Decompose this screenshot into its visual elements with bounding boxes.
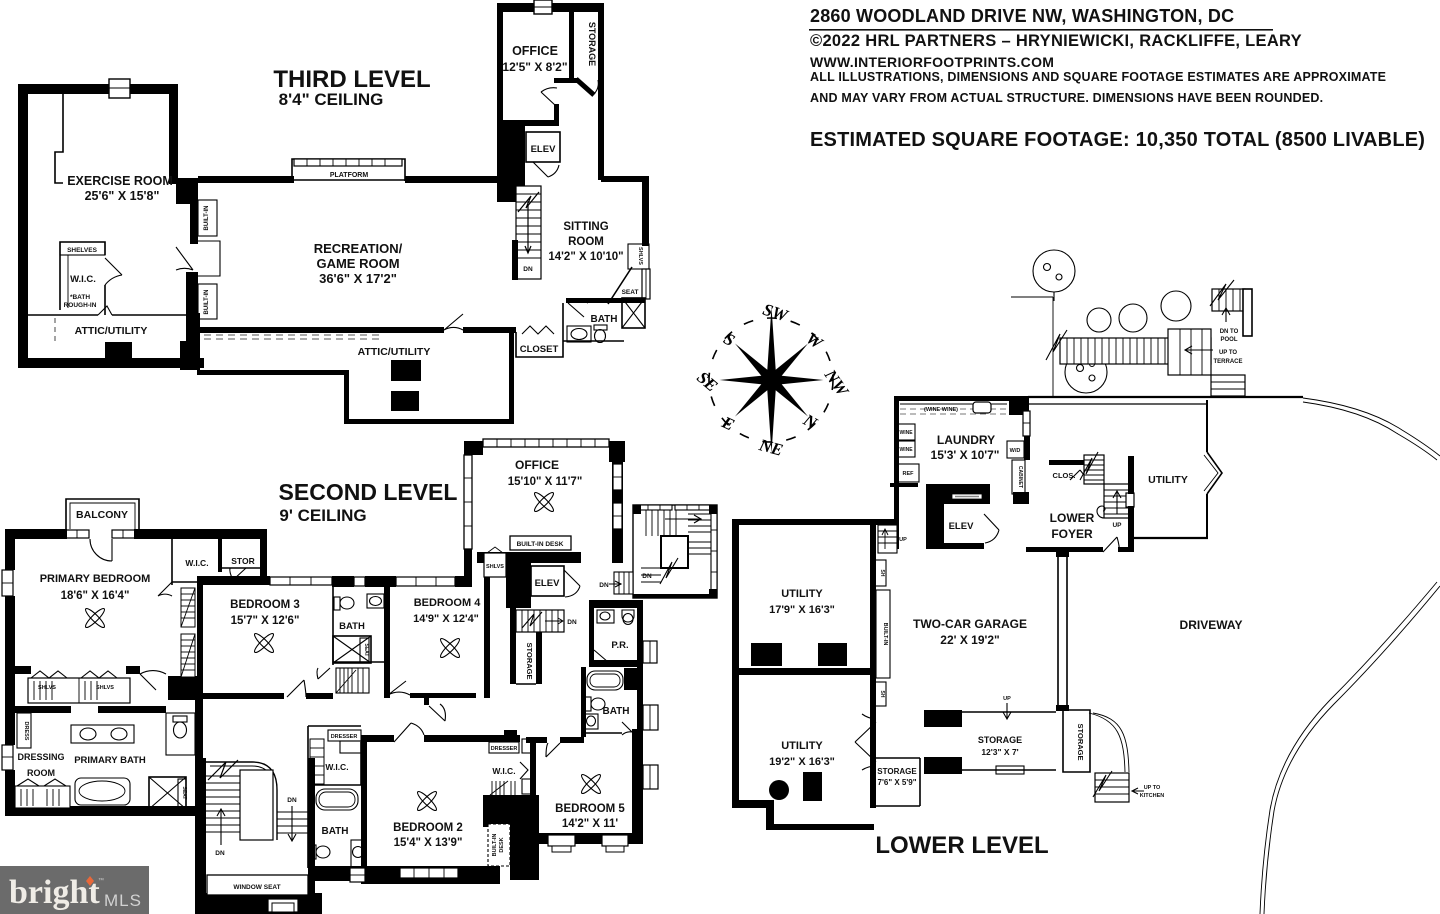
svg-text:BATH: BATH bbox=[321, 826, 348, 837]
svg-text:OFFICE: OFFICE bbox=[515, 458, 559, 472]
svg-text:12'3" X 7': 12'3" X 7' bbox=[981, 747, 1018, 757]
svg-text:W.I.C.: W.I.C. bbox=[185, 558, 208, 568]
svg-text:EXERCISE ROOM: EXERCISE ROOM bbox=[67, 174, 173, 188]
svg-text:WINDOW SEAT: WINDOW SEAT bbox=[233, 884, 280, 891]
svg-text:14'2" X 10'10": 14'2" X 10'10" bbox=[548, 251, 623, 263]
svg-text:CABINET: CABINET bbox=[1017, 466, 1023, 488]
svg-text:DN: DN bbox=[567, 619, 577, 626]
svg-text:STORAGE: STORAGE bbox=[978, 735, 1022, 745]
svg-text:REF: REF bbox=[903, 471, 915, 477]
svg-text:SHLVS: SHLVS bbox=[637, 247, 643, 265]
svg-text:BUILT-IN: BUILT-IN bbox=[492, 834, 498, 857]
svg-text:WINE: WINE bbox=[899, 447, 913, 453]
svg-text:TERRACE: TERRACE bbox=[1213, 359, 1242, 365]
svg-text:ALL ILLUSTRATIONS, DIMENSIONS: ALL ILLUSTRATIONS, DIMENSIONS AND SQUARE… bbox=[810, 70, 1386, 84]
svg-text:TWO-CAR GARAGE: TWO-CAR GARAGE bbox=[913, 617, 1027, 631]
svg-text:ELEV: ELEV bbox=[535, 578, 560, 589]
svg-text:W.I.C.: W.I.C. bbox=[325, 762, 348, 772]
svg-text:UP TO: UP TO bbox=[1144, 785, 1161, 791]
svg-text:15'7" X 12'6": 15'7" X 12'6" bbox=[231, 615, 300, 627]
svg-text:LOWER: LOWER bbox=[1050, 511, 1095, 525]
svg-text:DRESS: DRESS bbox=[23, 722, 29, 741]
svg-text:AND MAY VARY FROM ACTUAL STRUC: AND MAY VARY FROM ACTUAL STRUCTURE. DIME… bbox=[810, 91, 1323, 105]
svg-text:STOR: STOR bbox=[231, 556, 254, 566]
svg-text:BEDROOM 2: BEDROOM 2 bbox=[393, 822, 463, 834]
svg-text:LOWER LEVEL: LOWER LEVEL bbox=[875, 832, 1048, 859]
svg-text:22' X 19'2": 22' X 19'2" bbox=[940, 633, 999, 647]
svg-text:UTILITY: UTILITY bbox=[781, 740, 823, 752]
svg-text:W/D: W/D bbox=[1010, 448, 1021, 454]
svg-text:WINE: WINE bbox=[899, 430, 913, 436]
svg-text:BEDROOM 4: BEDROOM 4 bbox=[414, 597, 482, 609]
svg-text:18'6" X 16'4": 18'6" X 16'4" bbox=[61, 590, 130, 602]
svg-text:GAME ROOM: GAME ROOM bbox=[316, 256, 399, 271]
svg-text:BUILT-IN: BUILT-IN bbox=[204, 290, 210, 315]
svg-text:W.I.C.: W.I.C. bbox=[492, 766, 515, 776]
svg-text:BUILT-IN: BUILT-IN bbox=[882, 623, 888, 646]
svg-text:SHLVS: SHLVS bbox=[38, 685, 56, 691]
svg-text:BEDROOM 5: BEDROOM 5 bbox=[555, 803, 625, 815]
svg-text:BATH: BATH bbox=[590, 314, 617, 325]
svg-text:©2022 HRL PARTNERS – HRYNIEWIC: ©2022 HRL PARTNERS – HRYNIEWICKI, RACKLI… bbox=[810, 32, 1302, 50]
svg-text:STORAGE: STORAGE bbox=[1076, 724, 1085, 761]
svg-text:DESK: DESK bbox=[499, 837, 505, 852]
svg-text:SITTING: SITTING bbox=[563, 221, 608, 233]
svg-text:KITCHEN: KITCHEN bbox=[1140, 793, 1164, 799]
svg-text:POOL: POOL bbox=[1220, 337, 1237, 343]
svg-text:*BATH: *BATH bbox=[70, 294, 90, 301]
svg-text:UTILITY: UTILITY bbox=[1148, 474, 1188, 486]
svg-text:STORAGE: STORAGE bbox=[525, 643, 534, 680]
svg-text:DN TO: DN TO bbox=[1220, 329, 1239, 335]
svg-text:BUILT-IN DESK: BUILT-IN DESK bbox=[517, 541, 564, 548]
svg-text:17'9" X 16'3": 17'9" X 16'3" bbox=[769, 604, 835, 616]
svg-text:BALCONY: BALCONY bbox=[76, 509, 128, 521]
svg-text:UP: UP bbox=[1003, 696, 1011, 702]
svg-text:2860 WOODLAND DRIVE NW, WASHIN: 2860 WOODLAND DRIVE NW, WASHINGTON, DC bbox=[810, 6, 1234, 26]
svg-text:BATH: BATH bbox=[339, 621, 365, 632]
svg-text:SH: SH bbox=[879, 691, 885, 698]
svg-text:ATTIC/UTILITY: ATTIC/UTILITY bbox=[75, 325, 148, 337]
svg-text:MLS: MLS bbox=[104, 891, 142, 910]
svg-text:UTILITY: UTILITY bbox=[781, 588, 823, 600]
svg-text:25'6" X 15'8": 25'6" X 15'8" bbox=[85, 189, 160, 203]
svg-text:14'2" X 11': 14'2" X 11' bbox=[562, 818, 619, 830]
svg-text:SHELVES: SHELVES bbox=[67, 247, 98, 254]
svg-text:14'9" X 12'4": 14'9" X 12'4" bbox=[413, 613, 479, 625]
svg-text:OFFICE: OFFICE bbox=[512, 44, 558, 58]
svg-text:DRIVEWAY: DRIVEWAY bbox=[1180, 618, 1243, 632]
svg-text:DRESSING: DRESSING bbox=[17, 752, 64, 762]
svg-text:BATH: BATH bbox=[602, 706, 629, 717]
svg-text:19'2" X 16'3": 19'2" X 16'3" bbox=[769, 756, 835, 768]
svg-text:PRIMARY BEDROOM: PRIMARY BEDROOM bbox=[40, 573, 151, 585]
svg-text:FOYER: FOYER bbox=[1051, 527, 1093, 541]
svg-text:DRESSER: DRESSER bbox=[331, 734, 358, 740]
svg-text:UP: UP bbox=[1112, 522, 1122, 529]
svg-text:ROOM: ROOM bbox=[568, 236, 604, 248]
svg-text:ELEV: ELEV bbox=[531, 144, 556, 155]
svg-text:(WINE WINE): (WINE WINE) bbox=[924, 407, 958, 413]
svg-text:36'6" X 17'2": 36'6" X 17'2" bbox=[319, 271, 397, 286]
svg-text:SEAT: SEAT bbox=[622, 289, 639, 296]
svg-text:8'4" CEILING: 8'4" CEILING bbox=[279, 90, 384, 109]
svg-text:W.I.C.: W.I.C. bbox=[70, 274, 96, 285]
svg-text:ELEV: ELEV bbox=[949, 521, 974, 532]
svg-text:ROOM: ROOM bbox=[27, 768, 55, 778]
svg-text:P.R.: P.R. bbox=[611, 640, 628, 651]
svg-text:SEAT: SEAT bbox=[181, 787, 187, 800]
svg-text:RECREATION/: RECREATION/ bbox=[314, 241, 403, 256]
svg-text:BUILT-IN: BUILT-IN bbox=[204, 206, 210, 231]
svg-text:BEDROOM 3: BEDROOM 3 bbox=[230, 599, 300, 611]
svg-text:DN: DN bbox=[523, 266, 533, 273]
svg-text:9' CEILING: 9' CEILING bbox=[279, 506, 366, 525]
svg-text:SHLVS: SHLVS bbox=[486, 564, 504, 570]
svg-text:™: ™ bbox=[98, 877, 104, 884]
svg-text:UP: UP bbox=[899, 537, 907, 543]
svg-text:DRESSER: DRESSER bbox=[491, 746, 518, 752]
svg-text:DN: DN bbox=[215, 850, 225, 857]
svg-text:ESTIMATED SQUARE FOOTAGE: 10,3: ESTIMATED SQUARE FOOTAGE: 10,350 TOTAL (… bbox=[810, 129, 1425, 151]
svg-text:ATTIC/UTILITY: ATTIC/UTILITY bbox=[358, 346, 431, 358]
svg-text:PRIMARY BATH: PRIMARY BATH bbox=[74, 755, 146, 766]
svg-text:bright: bright bbox=[9, 874, 100, 911]
svg-text:DN: DN bbox=[599, 582, 609, 589]
svg-text:DN: DN bbox=[287, 797, 297, 804]
svg-text:15'4" X 13'9": 15'4" X 13'9" bbox=[394, 837, 463, 849]
svg-text:THIRD LEVEL: THIRD LEVEL bbox=[273, 66, 430, 93]
svg-text:SEAT: SEAT bbox=[363, 644, 369, 657]
svg-text:7'6" X 5'9": 7'6" X 5'9" bbox=[878, 778, 917, 787]
svg-text:15'3' X 10'7": 15'3' X 10'7" bbox=[931, 448, 1000, 462]
svg-text:ROUGH-IN: ROUGH-IN bbox=[64, 302, 97, 309]
svg-text:SECOND LEVEL: SECOND LEVEL bbox=[279, 479, 458, 505]
svg-text:STORAGE: STORAGE bbox=[587, 22, 597, 66]
svg-text:12'5" X 8'2": 12'5" X 8'2" bbox=[502, 60, 567, 74]
svg-text:SH: SH bbox=[879, 570, 885, 577]
svg-text:PLATFORM: PLATFORM bbox=[330, 172, 369, 179]
svg-text:WWW.INTERIORFOOTPRINTS.COM: WWW.INTERIORFOOTPRINTS.COM bbox=[810, 54, 1054, 70]
svg-text:UP TO: UP TO bbox=[1219, 350, 1237, 356]
svg-text:STORAGE: STORAGE bbox=[877, 767, 917, 776]
svg-text:DN: DN bbox=[642, 573, 652, 580]
svg-text:15'10" X 11'7": 15'10" X 11'7" bbox=[508, 476, 583, 488]
svg-text:SHLVS: SHLVS bbox=[96, 685, 114, 691]
svg-text:CLOSET: CLOSET bbox=[520, 344, 559, 355]
svg-text:LAUNDRY: LAUNDRY bbox=[937, 433, 995, 447]
